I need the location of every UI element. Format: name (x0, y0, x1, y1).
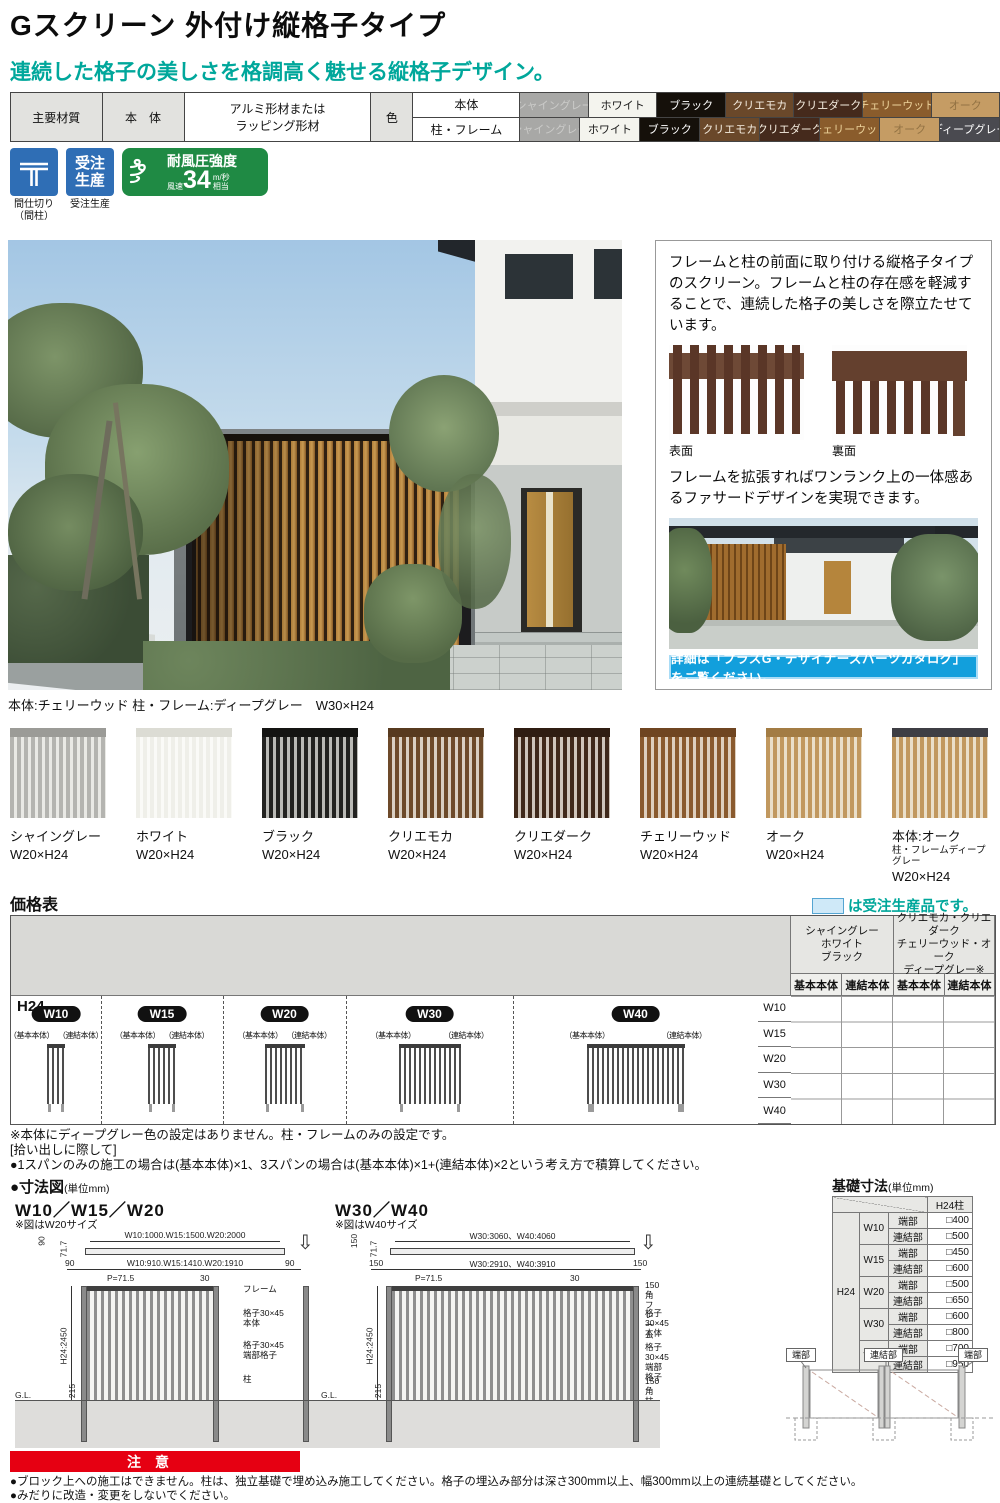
order-caption: 受注生産 (66, 199, 114, 211)
spec-color-rows: 本体 シャイングレー ホワイト ブラック クリエモカ クリエダーク チェリーウッ… (413, 93, 999, 141)
caution-line-2: ●みだりに改造・変更をしないでください。 (10, 1490, 996, 1503)
size-badge: W10 (32, 1006, 81, 1022)
partition-badge: 間仕切り （間柱） (10, 148, 58, 223)
wind-badge: 耐風圧強度 風速 34 m/秒 相当 (122, 148, 268, 196)
swatch-name: クリエダーク (514, 826, 610, 845)
partition-caption: 間仕切り （間柱） (10, 199, 58, 223)
spec-row-target: 本体 (413, 93, 520, 117)
swatch-item: クリエモカ W20×H24 (388, 728, 484, 884)
label-body: 格子30×45 本体 (645, 1308, 669, 1338)
link-unit-label: （連結本体） (287, 1030, 332, 1041)
link-unit-thumb (148, 1044, 176, 1104)
small-tree-right (438, 474, 512, 609)
foundation-part: 端部 (888, 1213, 927, 1229)
foundation-heading-text: 基礎寸法 (832, 1178, 888, 1194)
face-back-beam (832, 351, 967, 381)
spec-row-frame: 柱・フレーム シャイングレー ホワイト ブラック クリエモカ クリエダーク チェ… (413, 118, 999, 142)
foundation-size: W20 (859, 1277, 888, 1309)
price-size-group-w40: W40 （基本本体） （連結本体） (513, 996, 758, 1124)
swatch-item: ブラック W20×H24 (262, 728, 358, 884)
diagram-w30-w40: W30／W40 ※図はW40サイズ W30:3060、W40:4060 150 … (335, 1196, 660, 1448)
note-pickup-rule: ●1スパンのみの施工の場合は(基本本体)×1、3スパンの場合は(基本本体)×1+… (10, 1158, 707, 1173)
dim-inner-width: W10:910.W15:1410.W20:1910 (90, 1258, 280, 1268)
spec-body-label: 本 体 (103, 93, 185, 141)
foundation-size: W15 (859, 1245, 888, 1277)
foundation-value: □450 (928, 1245, 973, 1261)
swatch-item: クリエダーク W20×H24 (514, 728, 610, 884)
swatch-image (514, 728, 610, 818)
spec-material-value: アルミ形材または ラッピング形材 (185, 93, 372, 141)
dim-right-end: 90 (285, 1258, 294, 1268)
dim-slat-width: 30 (570, 1273, 579, 1283)
tree-foliage (8, 474, 143, 591)
label-frame: フレーム (243, 1284, 277, 1294)
swatch-lineup: シャイングレー W20×H24 ホワイト W20×H24 ブラック W20×H2… (10, 728, 990, 884)
dim-line (395, 1241, 630, 1242)
color-swatch: シャイングレー (520, 93, 589, 117)
dim-embed: 215 (67, 1384, 77, 1398)
foundation-value: □400 (928, 1213, 973, 1229)
face-back-block: 裏面 (832, 345, 967, 459)
price-size-group-w15: W15 （基本本体） （連結本体） (101, 996, 223, 1124)
label-post: 柱 (243, 1374, 252, 1384)
color-swatch: ディープグレー (940, 118, 999, 142)
swatch-image (766, 728, 862, 818)
foundation-part: 端部 (888, 1245, 927, 1261)
foundation-heading: 基礎寸法(単位mm) (832, 1176, 934, 1196)
wind-icon (128, 155, 162, 189)
swatch-size: W20×H24 (10, 847, 106, 862)
spec-row-body: 本体 シャイングレー ホワイト ブラック クリエモカ クリエダーク チェリーウッ… (413, 93, 999, 118)
swatch-subname: 柱・フレームディープグレー (892, 845, 988, 867)
color-swatch: ブラック (657, 93, 726, 117)
swatch-item: オーク W20×H24 (766, 728, 862, 884)
base-unit-label: （基本本体） (371, 1030, 416, 1041)
note-deep-gray: ※本体にディープグレー色の設定はありません。柱・フレームのみの設定です。 (10, 1128, 454, 1143)
embedded-post (386, 1400, 392, 1442)
foundation-value: □500 (928, 1229, 973, 1245)
wind-text: 耐風圧強度 風速 34 m/秒 相当 (167, 154, 237, 191)
foundation-schematic: 端部 連結部 端部 (786, 1348, 996, 1448)
dim-line (371, 1269, 641, 1270)
price-subcol: 基本本体 (894, 974, 945, 996)
price-size-group-w20: W20 （基本本体） （連結本体） (223, 996, 346, 1124)
swatch-name: ブラック (262, 826, 358, 845)
embedded-post (81, 1400, 87, 1442)
size-badge: W30 (405, 1006, 454, 1022)
price-subcol: 連結本体 (945, 974, 995, 996)
swatch-size: W20×H24 (514, 847, 610, 862)
face-front-slats (673, 345, 800, 434)
wind-speed-label: 風速 (167, 182, 183, 191)
price-subcol: 基本本体 (791, 974, 842, 996)
info-paragraph-2: フレームを拡張すればワンランク上の一体感あるファサードデザインを実現できます。 (669, 468, 978, 510)
dim-v2: 71.7 (368, 1241, 378, 1258)
foundation-value: □600 (928, 1261, 973, 1277)
foundation-part: 連結部 (888, 1293, 927, 1309)
swatch-size: W20×H24 (640, 847, 736, 862)
foundation-value: □500 (928, 1277, 973, 1293)
face-back-corner-post (953, 351, 965, 436)
dim-height: H24:2450 (364, 1328, 374, 1365)
dim-left-end: 150 (369, 1258, 383, 1268)
foundation-part: 端部 (888, 1309, 927, 1325)
color-swatch: クリエモカ (700, 118, 760, 142)
price-table: シャイングレー ホワイト ブラック クリエモカ・クリエダーク チェリーウッド・オ… (10, 915, 996, 1125)
face-images: 表面 裏面 (669, 345, 978, 459)
unit-labels: （基本本体） （連結本体） (513, 1030, 758, 1041)
color-swatch: クリエダーク (794, 93, 863, 117)
swatch-name: ホワイト (136, 826, 232, 845)
note-pickup-title: [拾い出しに際して] (10, 1143, 117, 1158)
dimension-heading: ●寸法図(単位mm) (10, 1176, 110, 1197)
frame-bar (390, 1248, 635, 1255)
price-size-group-w30: W30 （基本本体） （連結本体） (346, 996, 513, 1124)
color-swatch: オーク (880, 118, 940, 142)
foundation-unit: (単位mm) (888, 1182, 934, 1194)
link-unit-label: （連結本体） (164, 1030, 209, 1041)
link-unit-thumb (47, 1044, 65, 1104)
foundation-diagonal-cell (833, 1197, 928, 1213)
swatch-size: W20×H24 (262, 847, 358, 862)
unit-labels: （基本本体） （連結本体） (346, 1030, 513, 1041)
sightline-arrow: ⇩ (640, 1230, 657, 1255)
dimension-heading-text: ●寸法図 (10, 1179, 64, 1196)
partition-icon (10, 148, 58, 196)
wind-unit: m/秒 (213, 173, 230, 182)
price-colgroup-1: シャイングレー ホワイト ブラック (791, 916, 894, 974)
page-subtitle: 連続した格子の美しさを格調高く魅せる縦格子デザイン。 (10, 56, 555, 86)
foundation-col-header: H24柱 (928, 1197, 973, 1213)
swatch-item: シャイングレー W20×H24 (10, 728, 106, 884)
tree-right (891, 534, 978, 641)
color-swatch: オーク (932, 93, 1000, 117)
foundation-size: W10 (859, 1213, 888, 1245)
swatch-name: オーク (766, 826, 862, 845)
swatch-item: チェリーウッド W20×H24 (640, 728, 736, 884)
caution-badge: 注意 (10, 1451, 300, 1472)
foundation-schematic-drawing (786, 1348, 996, 1448)
color-swatch: クリエモカ (726, 93, 795, 117)
ground-band (15, 1400, 333, 1448)
link-unit-label: （連結本体） (444, 1030, 489, 1041)
foundation-size: W30 (859, 1309, 888, 1341)
swatch-item: 本体:オーク 柱・フレームディープグレー W20×H24 (892, 728, 988, 884)
legend-swatch (812, 898, 844, 914)
price-cells-empty (791, 996, 995, 1124)
foundation-part: 連結部 (888, 1229, 927, 1245)
dim-line (67, 1269, 301, 1270)
foundation-part: 端部 (888, 1277, 927, 1293)
dim-v1: 90 (37, 1236, 47, 1245)
info-paragraph-1: フレームと柱の前面に取り付ける縦格子タイプのスクリーン。フレームと柱の存在感を軽… (669, 253, 978, 337)
size-badge: W40 (611, 1006, 660, 1022)
label-end-lattice: 格子30×45 端部格子 (243, 1340, 284, 1360)
swatch-image (262, 728, 358, 818)
swatch-size: W20×H24 (892, 869, 988, 884)
wind-value: 34 (183, 169, 211, 191)
link-unit-label: （連結本体） (58, 1030, 103, 1041)
schematic-label-end: 端部 (958, 1348, 988, 1362)
color-swatch: チェリーウッド (820, 118, 880, 142)
size-row-label: W15 (758, 1022, 791, 1048)
door-glass (546, 492, 553, 627)
size-row-label: W20 (758, 1047, 791, 1073)
size-row-label: W40 (758, 1098, 791, 1124)
unit-labels: （基本本体） （連結本体） (223, 1030, 346, 1041)
house-window (505, 254, 573, 299)
dim-height: H24:2450 (58, 1328, 68, 1365)
base-unit-label: （基本本体） (115, 1030, 160, 1041)
face-front-image (669, 345, 804, 440)
dimension-unit: (単位mm) (64, 1183, 110, 1195)
dim-embed: 215 (373, 1384, 383, 1398)
face-front-label: 表面 (669, 442, 804, 459)
dim-pitch: P=71.5 (415, 1273, 442, 1283)
size-badge: W15 (138, 1006, 187, 1022)
tree-left (669, 528, 712, 633)
price-subcol: 連結本体 (842, 974, 894, 996)
partition-icon-glyph (16, 154, 52, 190)
base-unit-label: （基本本体） (238, 1030, 283, 1041)
swatch-image (640, 728, 736, 818)
wind-value-row: 風速 34 m/秒 相当 (167, 169, 237, 191)
wind-unit-block: m/秒 相当 (213, 173, 230, 191)
swatch-item: ホワイト W20×H24 (136, 728, 232, 884)
schematic-label-end: 端部 (786, 1348, 816, 1362)
price-colgroup-2: クリエモカ・クリエダーク チェリーウッド・オーク ディープグレー※ (894, 916, 995, 974)
ground-level-label: G.L. (15, 1390, 31, 1400)
parapet-shadow (475, 402, 622, 416)
dim-left-end: 90 (65, 1258, 74, 1268)
price-header-blank (11, 916, 791, 996)
dim-v2: 71.7 (58, 1241, 68, 1258)
link-unit-thumb (587, 1044, 685, 1104)
info-panel: フレームと柱の前面に取り付ける縦格子タイプのスクリーン。フレームと柱の存在感を軽… (655, 240, 992, 690)
page-title: Gスクリーン 外付け縦格子タイプ (10, 4, 446, 44)
size-label-column: W10 W15 W20 W30 W40 (758, 996, 791, 1124)
foundation-table: H24柱 H24 W10 端部 □400 連結部□500 W15端部□450 連… (832, 1196, 973, 1373)
price-size-group-w10: W10 （基本本体） （連結本体） (11, 996, 101, 1124)
spec-row-target: 柱・フレーム (413, 118, 520, 142)
link-unit-thumb (265, 1044, 305, 1104)
lattice-panel (85, 1286, 215, 1414)
swatch-name: 本体:オーク (892, 826, 988, 845)
swatch-name: チェリーウッド (640, 826, 736, 845)
catalog-banner: 詳細は「プラスG・デザイナーズパーツカタログ」をご覧ください。 (669, 655, 978, 679)
foundation-value: □800 (928, 1325, 973, 1341)
dim-v1: 150 (349, 1234, 359, 1248)
size-row-label: W10 (758, 996, 791, 1022)
diagram-w10-w15-w20: W10／W15／W20 ※図はW20サイズ W10:1000.W15:1500.… (15, 1196, 333, 1448)
swatch-image (10, 728, 106, 818)
ground-level-label: G.L. (321, 1390, 337, 1400)
base-unit-label: （基本本体） (565, 1030, 610, 1041)
color-swatch: ホワイト (580, 118, 640, 142)
wind-suffix: 相当 (213, 182, 230, 191)
link-unit-thumb (399, 1044, 461, 1104)
base-unit-label: （基本本体） (9, 1030, 54, 1041)
label-body: 格子30×45 本体 (243, 1308, 284, 1328)
color-swatch: ブラック (640, 118, 700, 142)
embedded-post (303, 1400, 309, 1442)
facade-photo (669, 518, 978, 649)
interior-door (824, 561, 852, 613)
unit-labels: （基本本体） （連結本体） (101, 1030, 223, 1041)
foundation-value: □600 (928, 1309, 973, 1325)
ground-band (321, 1400, 660, 1448)
swatch-image (136, 728, 232, 818)
embedded-post (213, 1400, 219, 1442)
foundation-value: □650 (928, 1293, 973, 1309)
size-badge: W20 (260, 1006, 309, 1022)
hero-caption: 本体:チェリーウッド 柱・フレーム:ディープグレー W30×H24 (8, 695, 374, 714)
swatch-name: シャイングレー (10, 826, 106, 845)
lattice-panel (390, 1286, 635, 1414)
hero-photo (8, 240, 622, 690)
color-swatch: クリエダーク (760, 118, 820, 142)
size-row-label: W30 (758, 1073, 791, 1099)
dim-pitch: P=71.5 (107, 1273, 134, 1283)
caution-line-1: ●ブロック上への施工はできません。柱は、独立基礎で埋め込み施工してください。格子… (10, 1476, 996, 1489)
spec-color-label: 色 (371, 93, 413, 141)
swatch-image (388, 728, 484, 818)
dim-top-width: W10:1000.W15:1500.W20:2000 (90, 1230, 280, 1240)
face-back-label: 裏面 (832, 442, 967, 459)
swatch-image (892, 728, 988, 818)
spec-table: 主要材質 本 体 アルミ形材または ラッピング形材 色 本体 シャイングレー ホ… (10, 92, 1000, 142)
dim-right-end: 150 (633, 1258, 647, 1268)
link-unit-label: （連結本体） (662, 1030, 707, 1041)
foundation-part: 連結部 (888, 1261, 927, 1277)
embedded-post (633, 1400, 639, 1442)
diagram-note: ※図はW20サイズ (15, 1217, 98, 1232)
swatch-size: W20×H24 (388, 847, 484, 862)
color-swatch: シャイングレー (520, 118, 580, 142)
unit-labels: （基本本体） （連結本体） (11, 1030, 101, 1041)
spec-material-label: 主要材質 (11, 93, 103, 141)
dim-line (90, 1241, 280, 1242)
face-front-block: 表面 (669, 345, 804, 459)
color-swatch: ホワイト (589, 93, 658, 117)
face-back-image (832, 345, 967, 440)
price-heading: 価格表 (10, 891, 58, 915)
foundation-part: 連結部 (888, 1325, 927, 1341)
swatch-size: W20×H24 (766, 847, 862, 862)
frame-bar (85, 1248, 285, 1255)
sightline-arrow: ⇩ (297, 1230, 314, 1255)
dim-slat-width: 30 (200, 1273, 209, 1283)
color-swatch: チェリーウッド (863, 93, 932, 117)
order-badge: 受注 生産 受注生産 (66, 148, 114, 211)
order-icon: 受注 生産 (66, 148, 114, 196)
schematic-label-joint: 連結部 (864, 1348, 903, 1362)
swatch-name: クリエモカ (388, 826, 484, 845)
swatch-size: W20×H24 (136, 847, 232, 862)
house-window (594, 249, 622, 299)
